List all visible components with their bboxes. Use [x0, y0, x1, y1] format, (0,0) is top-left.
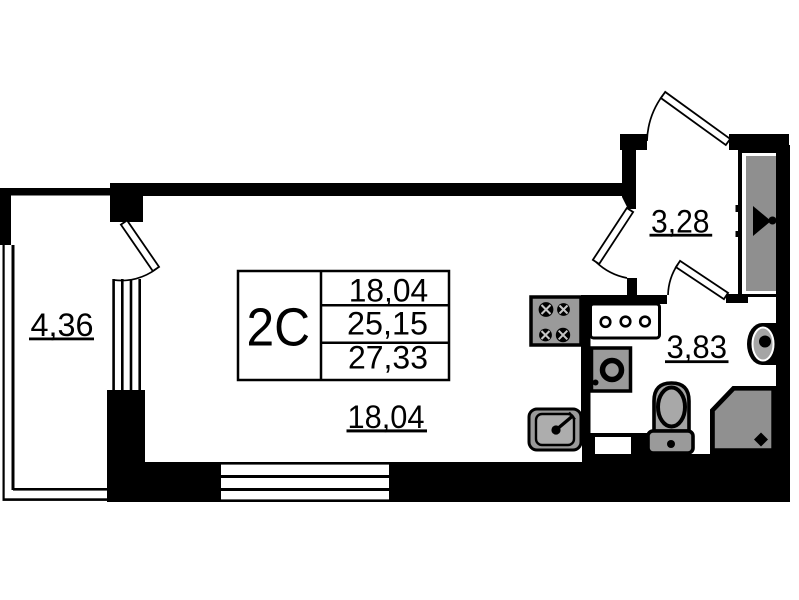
svg-text:27,33: 27,33	[348, 340, 428, 376]
svg-text:3,83: 3,83	[667, 329, 728, 365]
svg-text:18,04: 18,04	[349, 272, 429, 308]
svg-text:2C: 2C	[247, 298, 311, 357]
svg-text:25,15: 25,15	[347, 305, 428, 341]
